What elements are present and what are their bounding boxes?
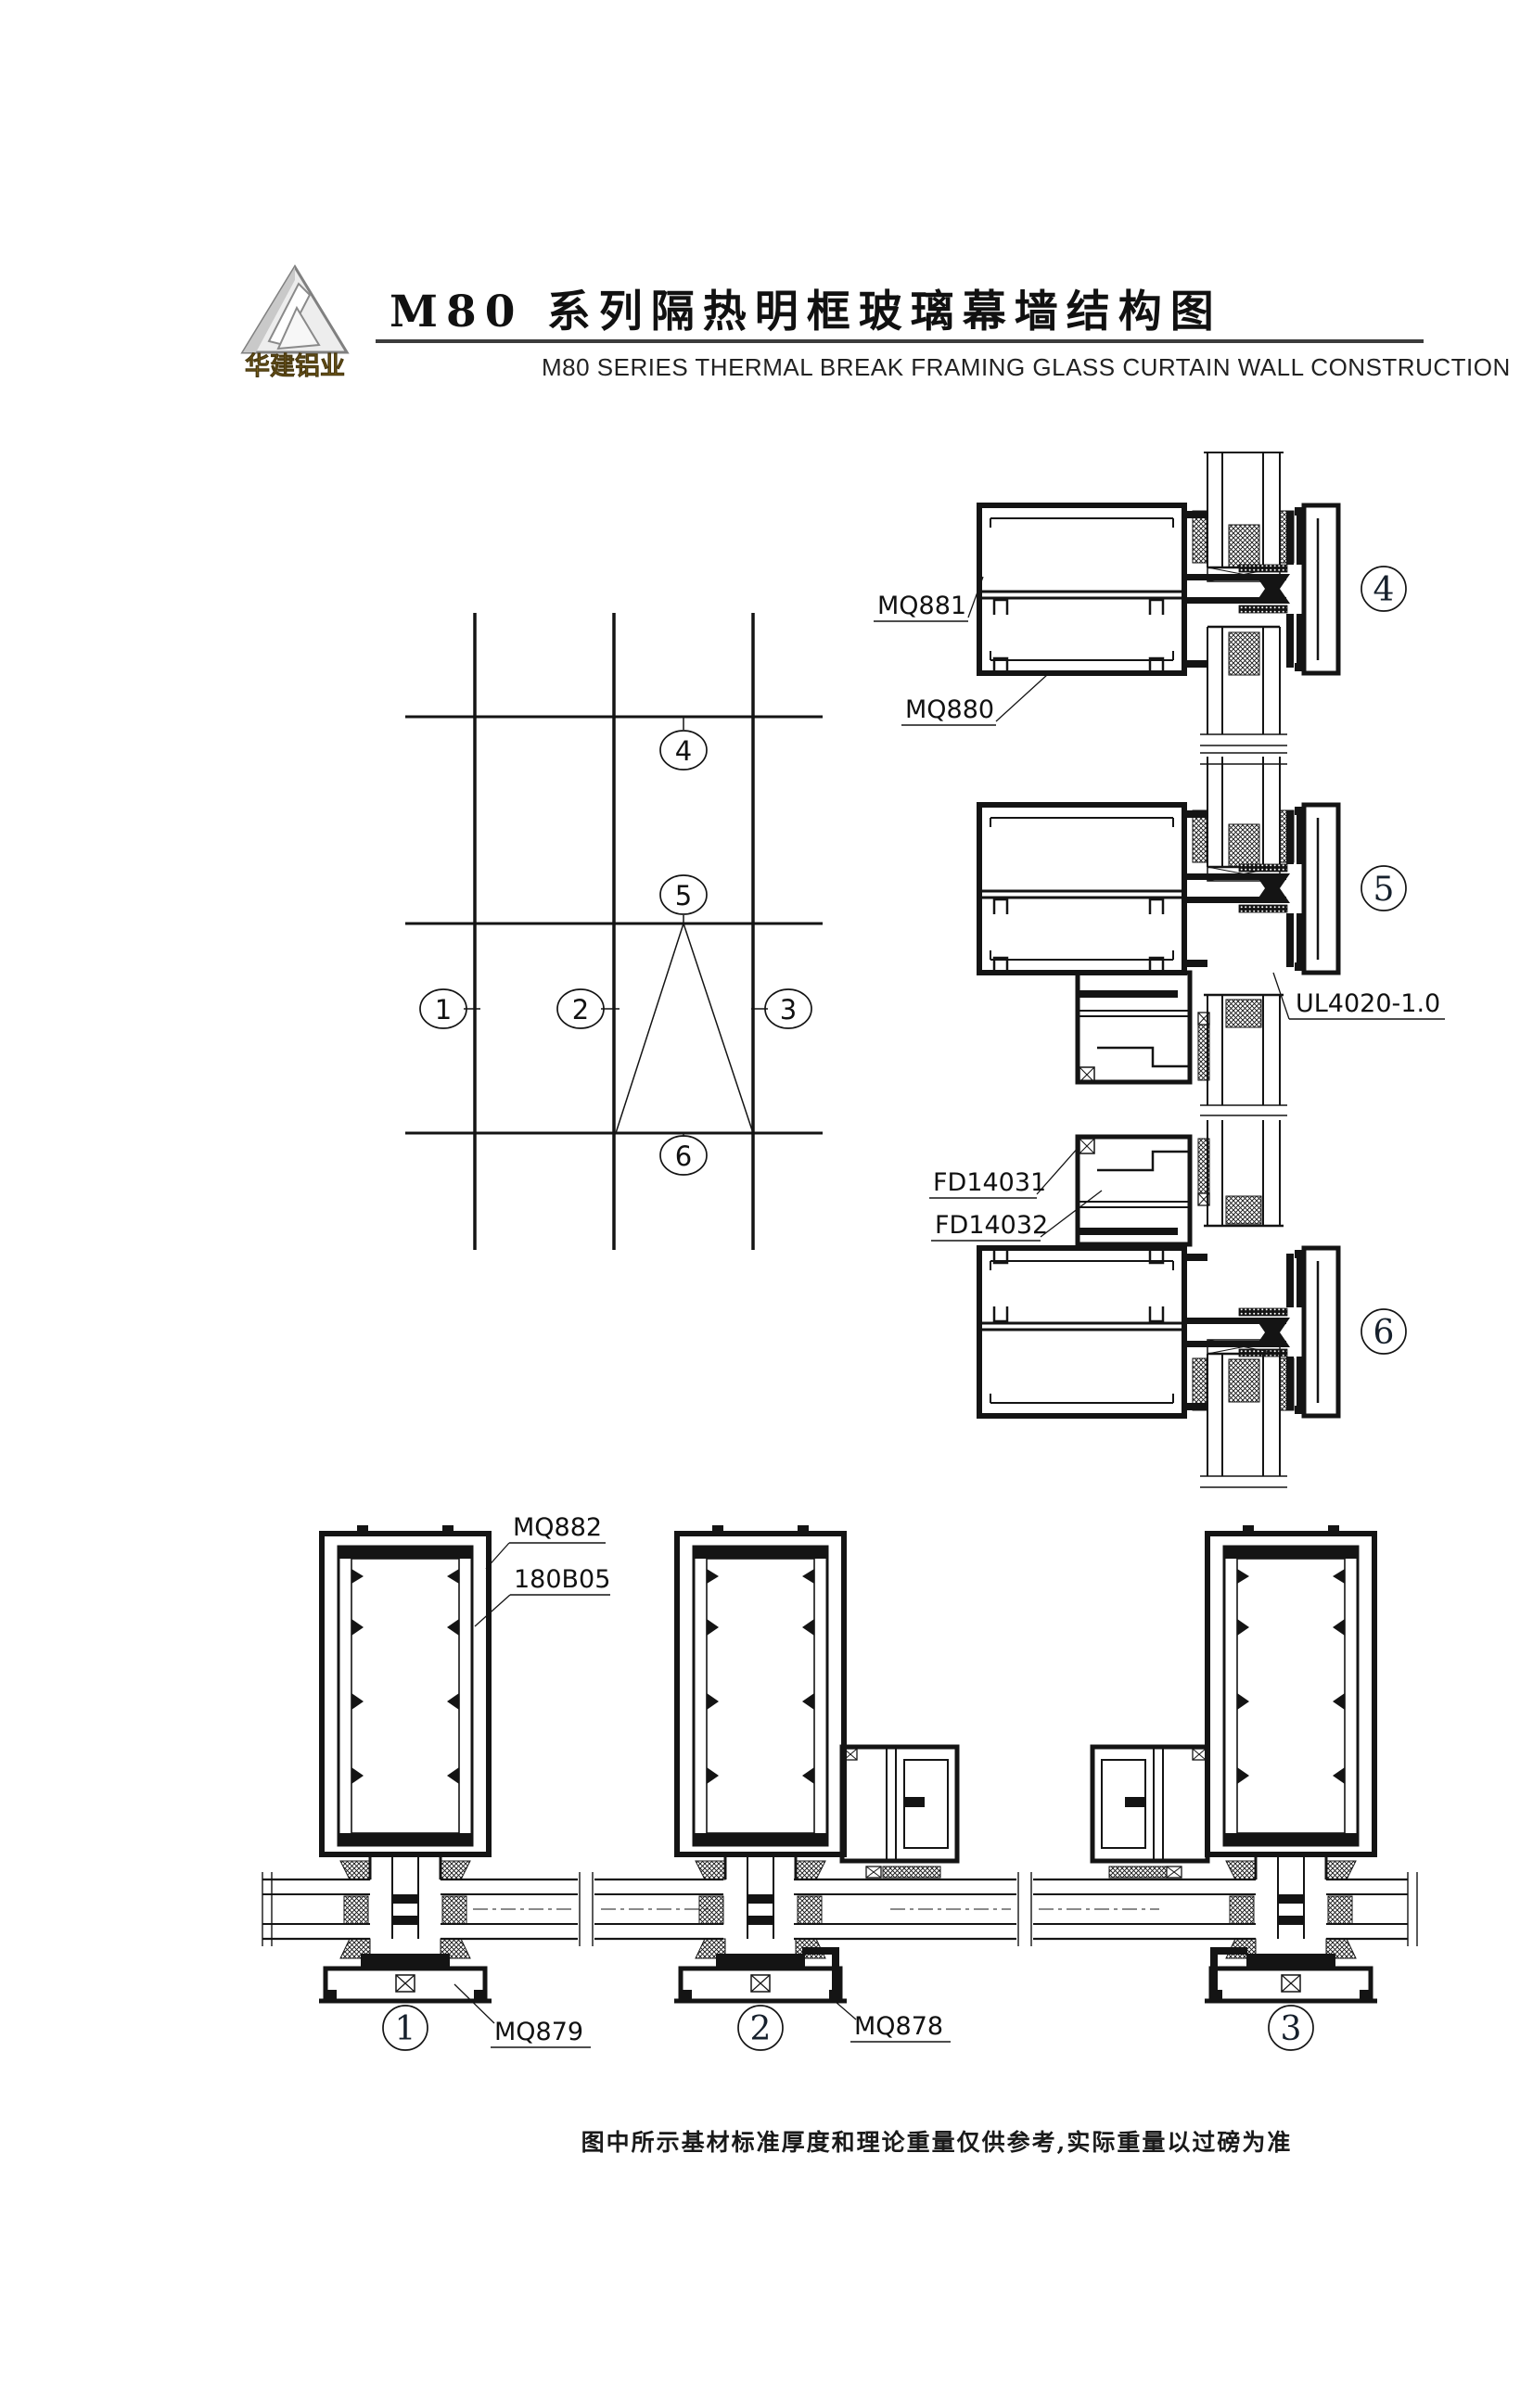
grid-callout-5: 5: [660, 875, 707, 914]
detail-section-4: MQ881 MQ880 4: [874, 452, 1406, 745]
detail-callout-1: 1: [383, 2006, 428, 2050]
label-mq880: MQ880: [901, 674, 1048, 725]
detail-callout-5: 5: [1361, 866, 1406, 911]
label-mq880-text: MQ880: [905, 695, 994, 724]
detail-section-3: 3: [1092, 1525, 1377, 2050]
mullion-profile: [319, 1525, 492, 2001]
label-fd14032-text: FD14032: [935, 1211, 1048, 1240]
grid-callout-5-number: 5: [675, 880, 692, 911]
label-mq881-text: MQ881: [877, 592, 966, 620]
label-ul4020: UL4020-1.0: [1273, 973, 1445, 1019]
grid-callout-1: 1: [420, 989, 466, 1028]
detail-callout-2-number: 2: [750, 2010, 772, 2048]
grid-callout-4-number: 4: [675, 735, 692, 767]
detail-callout-4: 4: [1361, 567, 1406, 611]
transom-profile: [979, 1248, 1338, 1416]
leader-line: [475, 1595, 510, 1626]
label-mq882: MQ882: [486, 1513, 606, 1569]
mullion-profile: [1205, 1525, 1377, 2001]
detail-callout-5-number: 5: [1373, 871, 1395, 909]
drawing-sheet: 华建铝业 M80 系列隔热明框玻璃幕墙结构图 M80 SERIES THERMA…: [0, 0, 1533, 2408]
grid-callout-6: 6: [660, 1136, 707, 1175]
leader-line: [836, 2002, 856, 2019]
label-180b05-text: 180B05: [514, 1565, 610, 1594]
transom-profile: [979, 505, 1338, 673]
leader-line: [996, 674, 1048, 721]
detail-section-6: FD14031 FD14032 6: [929, 1120, 1406, 1487]
grid-callout-2: 2: [557, 989, 604, 1028]
construction-drawing: 1 2 3 4 5 6: [0, 0, 1533, 2408]
opening-symbol: [616, 924, 683, 1133]
grid-callout-6-number: 6: [675, 1140, 692, 1172]
opening-symbol: [683, 924, 753, 1133]
elevation-key-diagram: 1 2 3 4 5 6: [405, 613, 823, 1250]
label-mq878-text: MQ878: [854, 2012, 943, 2041]
grid-callout-2-number: 2: [572, 994, 589, 1026]
detail-callout-3-number: 3: [1281, 2010, 1302, 2048]
grid-callout-3-number: 3: [780, 994, 797, 1026]
label-mq882-text: MQ882: [513, 1513, 602, 1542]
label-mq879-text: MQ879: [494, 2018, 583, 2046]
label-fd14031: FD14031: [929, 1146, 1079, 1198]
grid-callout-1-number: 1: [435, 994, 452, 1026]
detail-callout-6: 6: [1361, 1309, 1406, 1354]
detail-section-2: MQ878 2: [674, 1525, 957, 2050]
footer-disclaimer: 图中所示基材标准厚度和理论重量仅供参考,实际重量以过磅为准: [501, 2124, 1373, 2158]
vent-sill-frame: [1078, 1137, 1209, 1244]
label-fd14031-text: FD14031: [933, 1168, 1046, 1197]
vent-head-frame: [1078, 973, 1209, 1082]
grid-callout-4: 4: [660, 731, 707, 770]
detail-callout-1-number: 1: [395, 2010, 416, 2048]
transom-profile: [979, 805, 1338, 973]
mullion-profile: [674, 1525, 847, 2001]
grid-callout-3: 3: [765, 989, 811, 1028]
detail-callout-3: 3: [1269, 2006, 1313, 2050]
label-ul4020-text: UL4020-1.0: [1296, 989, 1440, 1018]
detail-callout-4-number: 4: [1373, 571, 1395, 609]
label-mq881: MQ881: [874, 577, 983, 621]
vent-jamb-frame-right: [802, 1747, 957, 2001]
detail-section-1: MQ882 180B05 MQ879 1: [319, 1513, 610, 2050]
detail-section-5: UL4020-1.0 5: [979, 753, 1445, 1115]
detail-callout-2: 2: [738, 2006, 783, 2050]
label-mq878: MQ878: [836, 2002, 951, 2042]
detail-callout-6-number: 6: [1373, 1314, 1395, 1352]
label-180b05: 180B05: [475, 1565, 610, 1626]
